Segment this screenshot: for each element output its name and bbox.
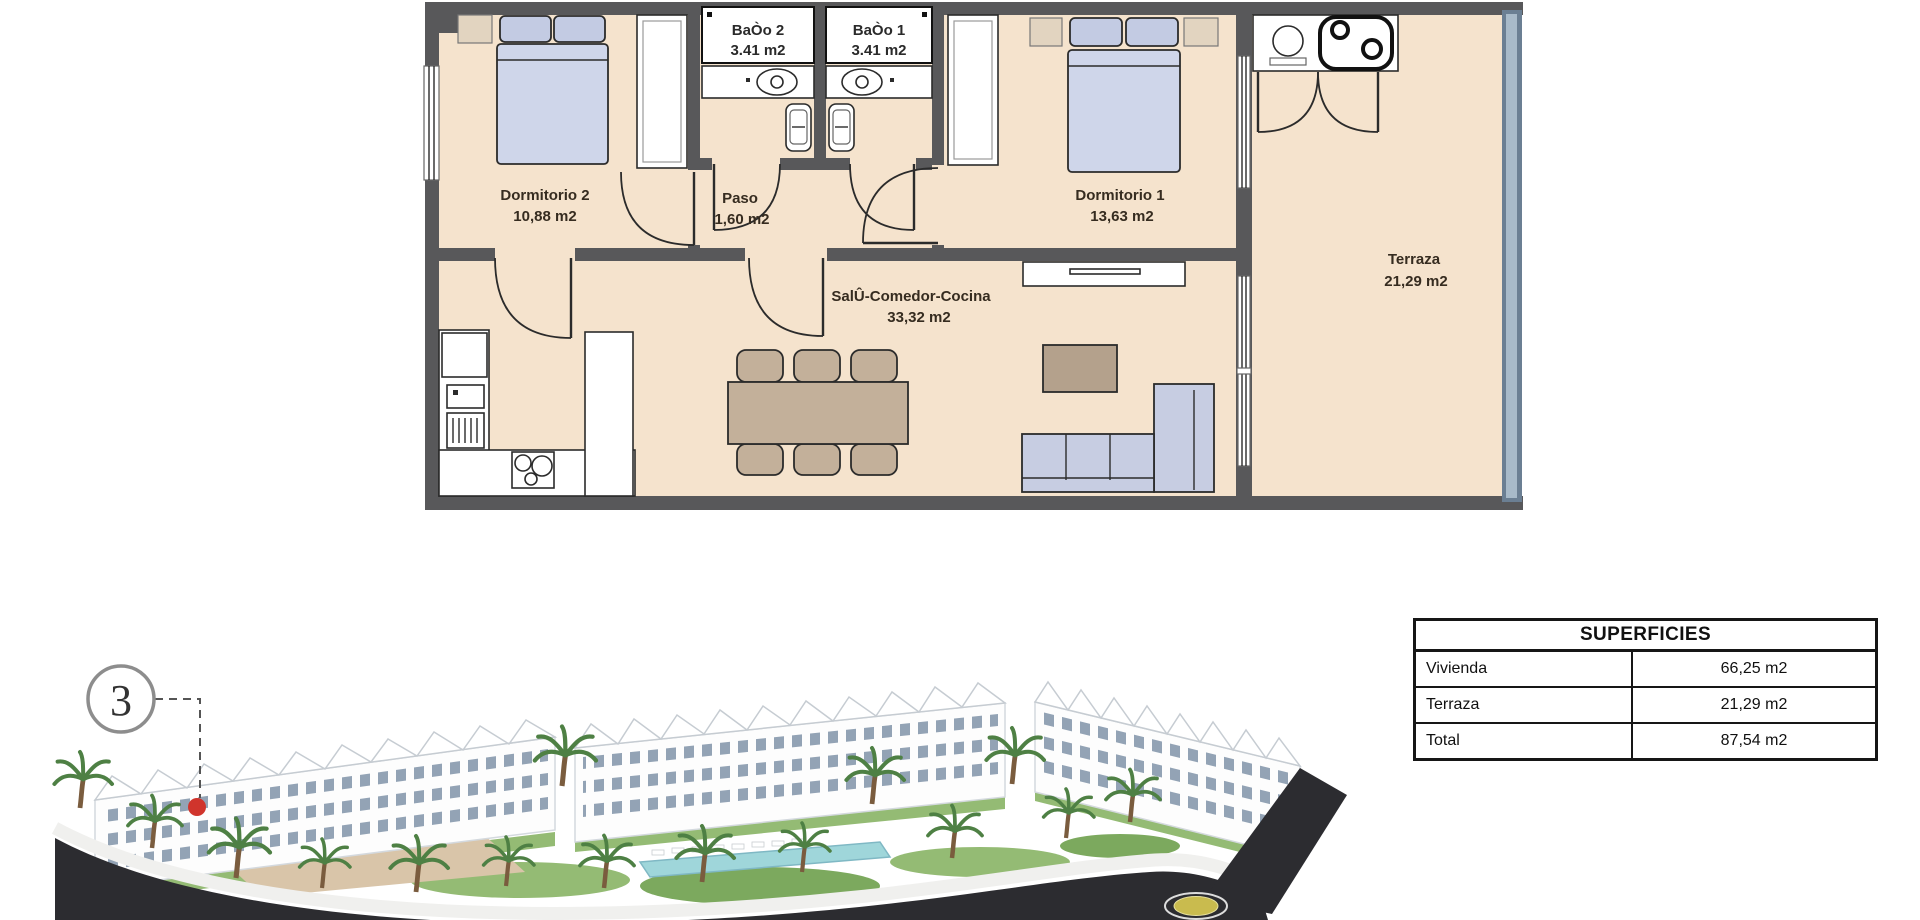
room-area-terraza: 21,29 m2 xyxy=(1384,273,1447,290)
room-label-terraza: Terraza xyxy=(1388,251,1441,268)
dormitorio1-furniture xyxy=(948,15,1218,172)
room-area-salon: 33,32 m2 xyxy=(887,309,950,326)
bano1-toilet xyxy=(829,104,854,151)
dining-set xyxy=(728,350,908,475)
row-label: Terraza xyxy=(1416,688,1633,722)
chair xyxy=(851,350,897,382)
closet-dormitorio2 xyxy=(637,15,687,168)
laundry-corner xyxy=(1253,15,1398,71)
chair xyxy=(737,444,783,475)
room-label-dormitorio1: Dormitorio 1 xyxy=(1075,187,1164,204)
scene-canvas: 3 xyxy=(0,0,1920,920)
window-dormitorio2 xyxy=(424,66,439,180)
kitchen-sink xyxy=(447,385,484,408)
pillow xyxy=(500,16,551,42)
room-label-bano1: BaÒo 1 xyxy=(853,21,906,39)
nightstand xyxy=(1184,18,1218,46)
fridge xyxy=(442,333,487,377)
row-value: 66,25 m2 xyxy=(1633,652,1875,686)
row-label: Vivienda xyxy=(1416,652,1633,686)
chair xyxy=(794,444,840,475)
unit-marker-dot xyxy=(188,798,206,816)
chair xyxy=(851,444,897,475)
pillow xyxy=(1126,18,1178,46)
window-dormitorio1 xyxy=(1238,56,1250,188)
superficies-title: SUPERFICIES xyxy=(1416,621,1875,652)
table-row: Terraza 21,29 m2 xyxy=(1416,688,1875,724)
room-label-dormitorio2: Dormitorio 2 xyxy=(500,187,589,204)
row-label: Total xyxy=(1416,724,1633,758)
page: 3 xyxy=(0,0,1920,920)
bano2-sink xyxy=(702,66,814,98)
room-area-paso: 1,60 m2 xyxy=(714,211,769,228)
pillow xyxy=(554,16,605,42)
coffee-table xyxy=(1043,345,1117,392)
room-area-dormitorio1: 13,63 m2 xyxy=(1090,208,1153,225)
chair xyxy=(737,350,783,382)
site-render: 3 xyxy=(54,666,1347,920)
tv-unit xyxy=(1023,262,1185,286)
sliding-door-terraza xyxy=(1237,276,1251,466)
nightstand xyxy=(1030,18,1062,46)
bano1-sink xyxy=(826,66,932,98)
unit-badge-number: 3 xyxy=(110,676,132,725)
dining-table xyxy=(728,382,908,444)
row-value: 87,54 m2 xyxy=(1633,724,1875,758)
kitchen-column xyxy=(585,332,633,496)
superficies-table: SUPERFICIES Vivienda 66,25 m2 Terraza 21… xyxy=(1413,618,1878,761)
nightstand xyxy=(458,15,492,43)
terraza-balustrade-glass xyxy=(1506,14,1517,498)
room-area-bano1: 3.41 m2 xyxy=(851,42,906,59)
table-row: Vivienda 66,25 m2 xyxy=(1416,652,1875,688)
row-value: 21,29 m2 xyxy=(1633,688,1875,722)
drainer xyxy=(447,413,484,448)
bed-dormitorio1 xyxy=(1068,50,1180,172)
hob xyxy=(512,452,554,488)
room-area-dormitorio2: 10,88 m2 xyxy=(513,208,576,225)
chair xyxy=(794,350,840,382)
washing-machine xyxy=(1273,26,1303,56)
water-heater xyxy=(1320,17,1392,69)
floor-plan: BaÒo 2 3.41 m2 BaÒo 1 3.41 m2 Dormitorio… xyxy=(424,2,1523,510)
bano2-toilet xyxy=(786,104,811,151)
closet-dormitorio1 xyxy=(948,15,998,165)
room-area-bano2: 3.41 m2 xyxy=(730,42,785,59)
room-label-salon: SalÛ-Comedor-Cocina xyxy=(831,287,991,305)
room-label-paso: Paso xyxy=(722,190,758,207)
table-row: Total 87,54 m2 xyxy=(1416,724,1875,758)
room-label-bano2: BaÒo 2 xyxy=(732,21,785,39)
bed-dormitorio2 xyxy=(497,44,608,164)
pillow xyxy=(1070,18,1122,46)
